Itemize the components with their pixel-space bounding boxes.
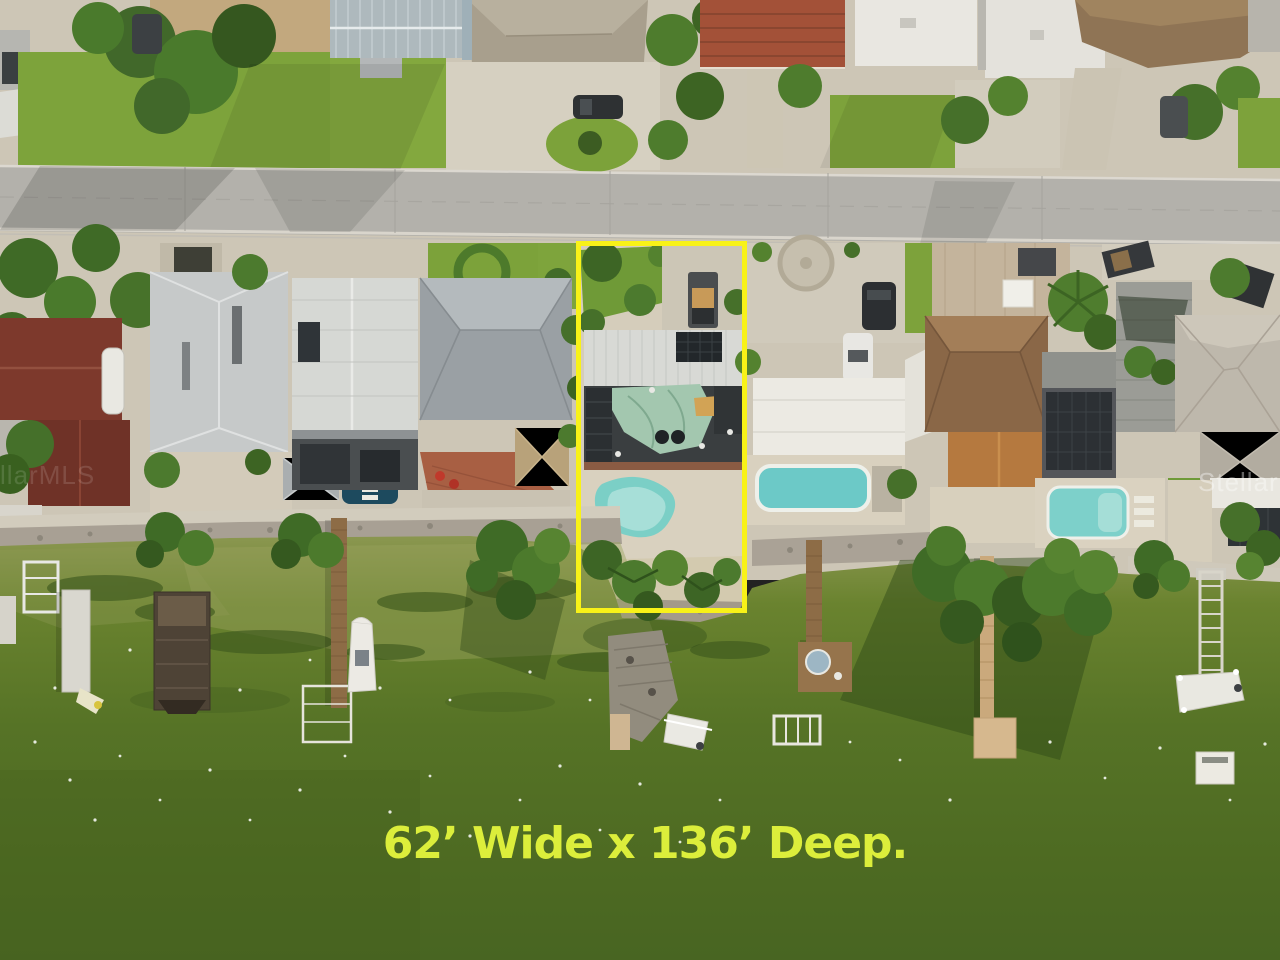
top-strip: [0, 0, 1280, 172]
pool-right-1: [757, 466, 869, 510]
lot-house: [584, 330, 742, 470]
utility-truck: [688, 272, 718, 328]
solar-array: [298, 322, 320, 362]
roof-shingle-tan: [462, 0, 648, 64]
property-right-1: [735, 237, 932, 525]
lot-solar-array: [676, 332, 722, 362]
lot-dimensions-label: 62’ Wide x 136’ Deep.: [383, 818, 908, 869]
roof-red-tile: [700, 0, 845, 68]
roof-white-flat: [753, 378, 905, 465]
white-boat-moored: [348, 617, 376, 692]
stored-rv: [102, 348, 124, 414]
watermark-right: StellarMLS: [1198, 467, 1280, 497]
solar-flat-roof: [1046, 392, 1112, 470]
dock-left-edge: [0, 596, 16, 644]
street: [0, 165, 1280, 248]
white-shed: [1003, 280, 1033, 307]
parked-suv: [862, 282, 896, 330]
old-barge: [154, 592, 210, 714]
dock-end-platform: [974, 718, 1016, 758]
aerial-scene: 62’ Wide x 136’ Deep. StellarMLS Stellar…: [0, 0, 1280, 960]
driveway-pavers: [747, 70, 783, 168]
aerial-photo: 62’ Wide x 136’ Deep. StellarMLS Stellar…: [0, 0, 1280, 960]
umbrella: [806, 650, 830, 674]
floating-platform-right: [1196, 752, 1234, 784]
floating-dock-white: [62, 590, 90, 692]
stored-boat: [132, 14, 162, 54]
watermark-left: StellarMLS: [0, 460, 95, 490]
